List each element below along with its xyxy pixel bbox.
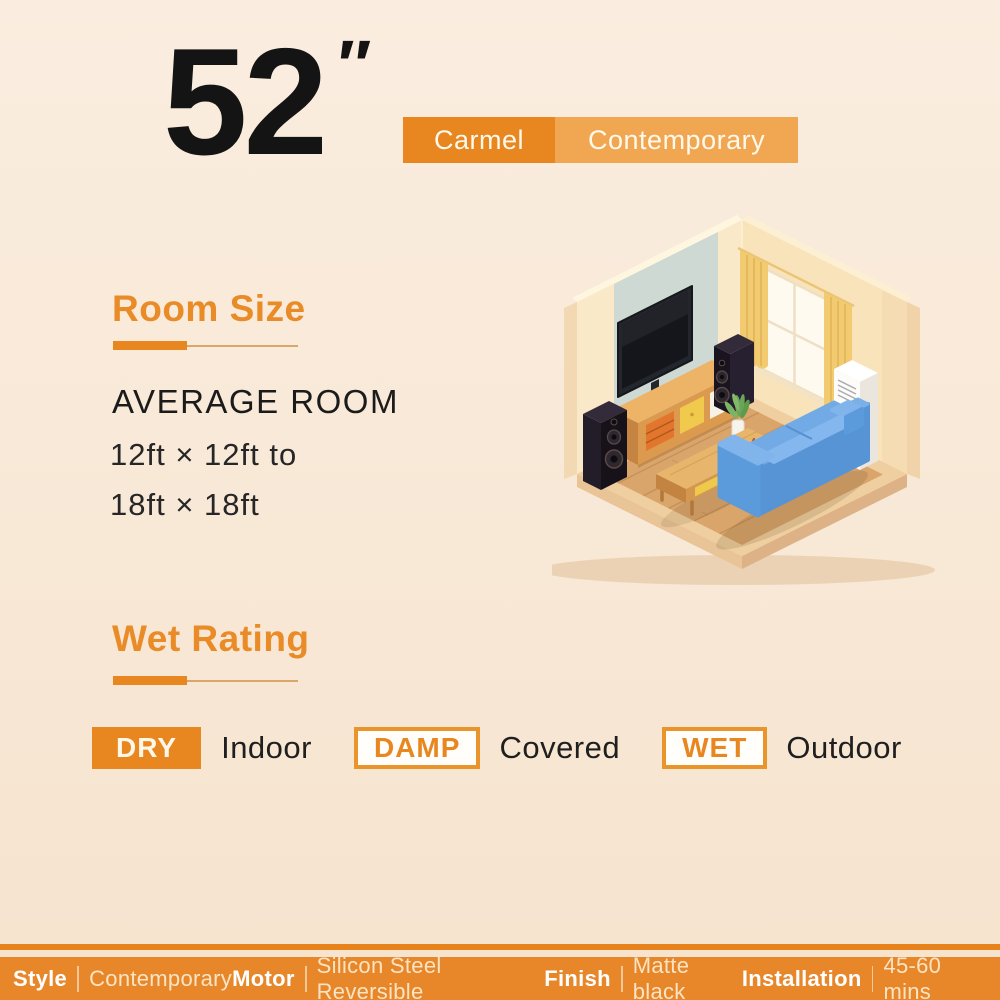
series-name-badge: Carmel xyxy=(403,117,555,163)
spec-label: Motor xyxy=(232,966,295,992)
wet-label: Outdoor xyxy=(786,730,902,766)
room-dimensions-line1: 12ft × 12ft to xyxy=(110,430,297,480)
spec-label: Installation xyxy=(742,966,862,992)
damp-label: Covered xyxy=(499,730,620,766)
underline-thin-segment xyxy=(187,680,298,682)
spec-value: Matte black xyxy=(633,953,742,1000)
spec-value: Silicon Steel Reversible xyxy=(317,953,545,1000)
spec-divider xyxy=(77,966,79,992)
underline-thick-segment xyxy=(113,676,187,685)
wet-rating-row: DRY Indoor DAMP Covered WET Outdoor xyxy=(92,727,902,769)
room-dimensions: 12ft × 12ft to 18ft × 18ft xyxy=(110,430,297,530)
room-size-heading: Room Size xyxy=(112,288,306,330)
specs-bar-topline xyxy=(0,944,1000,950)
average-room-label: AVERAGE ROOM xyxy=(112,383,399,421)
spec-divider xyxy=(621,966,623,992)
underline-thick-segment xyxy=(113,341,187,350)
underline-thin-segment xyxy=(187,345,298,347)
spec-value: 45-60 mins xyxy=(883,953,987,1000)
spec-divider xyxy=(305,966,307,992)
wet-badge: WET xyxy=(662,727,767,769)
dry-badge: DRY xyxy=(92,727,201,769)
spec-divider xyxy=(872,966,874,992)
spec-item-style: Style Contemporary xyxy=(13,966,232,992)
room-size-underline xyxy=(113,341,298,350)
spec-item-installation: Installation 45-60 mins xyxy=(742,953,987,1000)
specs-bar: Style Contemporary Motor Silicon Steel R… xyxy=(0,957,1000,1000)
wet-rating-heading: Wet Rating xyxy=(112,618,310,660)
spec-label: Style xyxy=(13,966,67,992)
speaker-left xyxy=(583,401,627,490)
series-badge-row: Carmel Contemporary xyxy=(403,117,798,163)
room-illustration xyxy=(552,198,972,588)
dry-label: Indoor xyxy=(221,730,312,766)
fan-size-value: 52 xyxy=(163,28,324,177)
room-dimensions-line2: 18ft × 18ft xyxy=(110,480,297,530)
spec-value: Contemporary xyxy=(89,966,232,992)
infographic-canvas: 52 ″ Carmel Contemporary Room Size AVERA… xyxy=(0,0,1000,1000)
fan-size-unit: ″ xyxy=(334,30,368,100)
damp-badge: DAMP xyxy=(354,727,480,769)
fan-size-display: 52 ″ xyxy=(163,28,368,177)
spec-label: Finish xyxy=(544,966,611,992)
wet-rating-underline xyxy=(113,676,298,685)
series-style-badge: Contemporary xyxy=(555,117,798,163)
spec-item-motor: Motor Silicon Steel Reversible xyxy=(232,953,544,1000)
spec-item-finish: Finish Matte black xyxy=(544,953,742,1000)
